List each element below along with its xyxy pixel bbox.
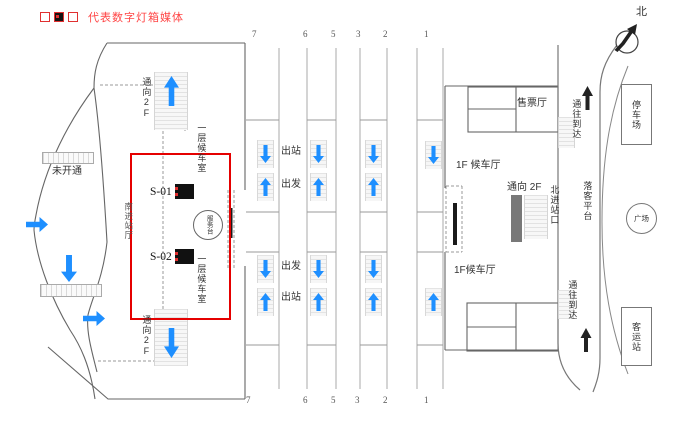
escalator-up-icon bbox=[310, 288, 327, 316]
label-not-open: 未开通 bbox=[52, 166, 82, 178]
escalator-down-icon bbox=[310, 140, 327, 168]
escalator-up-icon bbox=[365, 173, 382, 201]
platform-number-top: 3 bbox=[356, 29, 361, 39]
escalator-down-icon bbox=[365, 140, 382, 168]
label-to-2f-upper: 通向2F bbox=[141, 77, 151, 119]
media-s01-label: S-01 bbox=[150, 186, 172, 198]
label-waiting-room-lower: 一层候车室 bbox=[196, 254, 206, 304]
label-south-entrance-hall: 南进站厅 bbox=[123, 202, 133, 240]
label-drop-off-platform: 落客平台 bbox=[582, 181, 592, 221]
media-s02-row: S-02 bbox=[150, 249, 194, 264]
platform-number-top: 7 bbox=[252, 29, 257, 39]
platform-number-bottom: 2 bbox=[383, 395, 388, 405]
media-s02-label: S-02 bbox=[150, 251, 172, 263]
up-arrow-road-bottom-icon bbox=[581, 328, 592, 352]
label-waiting-room-upper: 一层候车室 bbox=[196, 123, 206, 173]
label-exit-lower: 出站 bbox=[281, 292, 301, 304]
parking-lot-label: 停车场 bbox=[630, 100, 643, 130]
escalator-up-icon bbox=[310, 173, 327, 201]
plaza-square: 广场 bbox=[626, 203, 657, 234]
label-exit-upper: 出站 bbox=[281, 146, 301, 158]
lightbox-s01-icon bbox=[175, 184, 194, 199]
north-gate-bar bbox=[453, 203, 457, 245]
escalator-down-icon bbox=[257, 255, 274, 283]
lightbox-s02-icon bbox=[175, 249, 194, 264]
platform-number-bottom: 1 bbox=[424, 395, 429, 405]
bus-station-label: 客运站 bbox=[630, 322, 643, 352]
media-s01-row: S-01 bbox=[150, 184, 194, 199]
label-waiting-1f-lower: 1F候车厅 bbox=[454, 265, 496, 277]
plaza-square-label: 广场 bbox=[634, 213, 649, 224]
flow-right-arrow-icon bbox=[26, 217, 48, 232]
flow-down-arrow-icon bbox=[61, 255, 77, 282]
parking-lot: 停车场 bbox=[621, 84, 652, 145]
lightbox-media-icon bbox=[68, 12, 78, 22]
closed-gate-upper bbox=[42, 152, 94, 164]
escalator-up-icon bbox=[257, 288, 274, 316]
closed-gate-lower bbox=[40, 284, 102, 297]
platform-number-top: 5 bbox=[331, 29, 336, 39]
label-to-arrival-upper: 通往到达 bbox=[571, 99, 581, 139]
stairs-down-arrow-icon bbox=[164, 328, 179, 358]
label-depart-upper: 出发 bbox=[281, 179, 301, 191]
label-north-entrance: 北进站口 bbox=[549, 185, 559, 225]
legend-label: 代表数字灯箱媒体 bbox=[88, 9, 184, 25]
platform-number-bottom: 7 bbox=[246, 395, 251, 405]
lightbox-media-icon bbox=[40, 12, 50, 22]
stairs-right-to-2f bbox=[524, 195, 548, 239]
label-depart-lower: 出发 bbox=[281, 261, 301, 273]
platform-number-bottom: 3 bbox=[355, 395, 360, 405]
label-to-2f-lower: 通向2F bbox=[141, 315, 151, 357]
escalator-down-icon bbox=[365, 255, 382, 283]
bus-station: 客运站 bbox=[621, 307, 652, 366]
legend: 代表数字灯箱媒体 bbox=[40, 9, 184, 25]
escalator-up-icon bbox=[425, 288, 442, 316]
flow-right-arrow-icon bbox=[83, 311, 105, 326]
platform-number-top: 2 bbox=[383, 29, 388, 39]
platform-number-bottom: 5 bbox=[331, 395, 336, 405]
platform-number-top: 6 bbox=[303, 29, 308, 39]
label-waiting-1f-upper: 1F 候车厅 bbox=[456, 160, 500, 172]
escalator-down-icon bbox=[310, 255, 327, 283]
platform-number-bottom: 6 bbox=[303, 395, 308, 405]
lightbox-media-icon bbox=[54, 12, 64, 22]
label-to-2f-right: 通向 2F bbox=[507, 182, 541, 194]
escalator-right-dark bbox=[511, 195, 522, 242]
label-ticket-hall: 售票厅 bbox=[517, 98, 547, 110]
escalator-down-icon bbox=[425, 141, 442, 169]
platform-number-top: 1 bbox=[424, 29, 429, 39]
escalator-up-icon bbox=[257, 173, 274, 201]
service-desk: 服务台 bbox=[193, 210, 223, 240]
escalator-down-icon bbox=[257, 140, 274, 168]
compass-needle-icon bbox=[615, 24, 639, 53]
label-to-arrival-lower: 通往到达 bbox=[567, 280, 577, 320]
service-desk-label: 服务台 bbox=[205, 215, 212, 235]
compass-north-label: 北 bbox=[636, 3, 647, 19]
escalator-up-icon bbox=[365, 288, 382, 316]
up-arrow-road-top-icon bbox=[582, 86, 593, 110]
stairs-up-arrow-icon bbox=[164, 76, 179, 106]
station-map: 代表数字灯箱媒体 北 服务台 S-01 S-02 停车场 广场 客运站 未开通通… bbox=[0, 0, 695, 426]
exit-gate-bar bbox=[229, 208, 233, 238]
